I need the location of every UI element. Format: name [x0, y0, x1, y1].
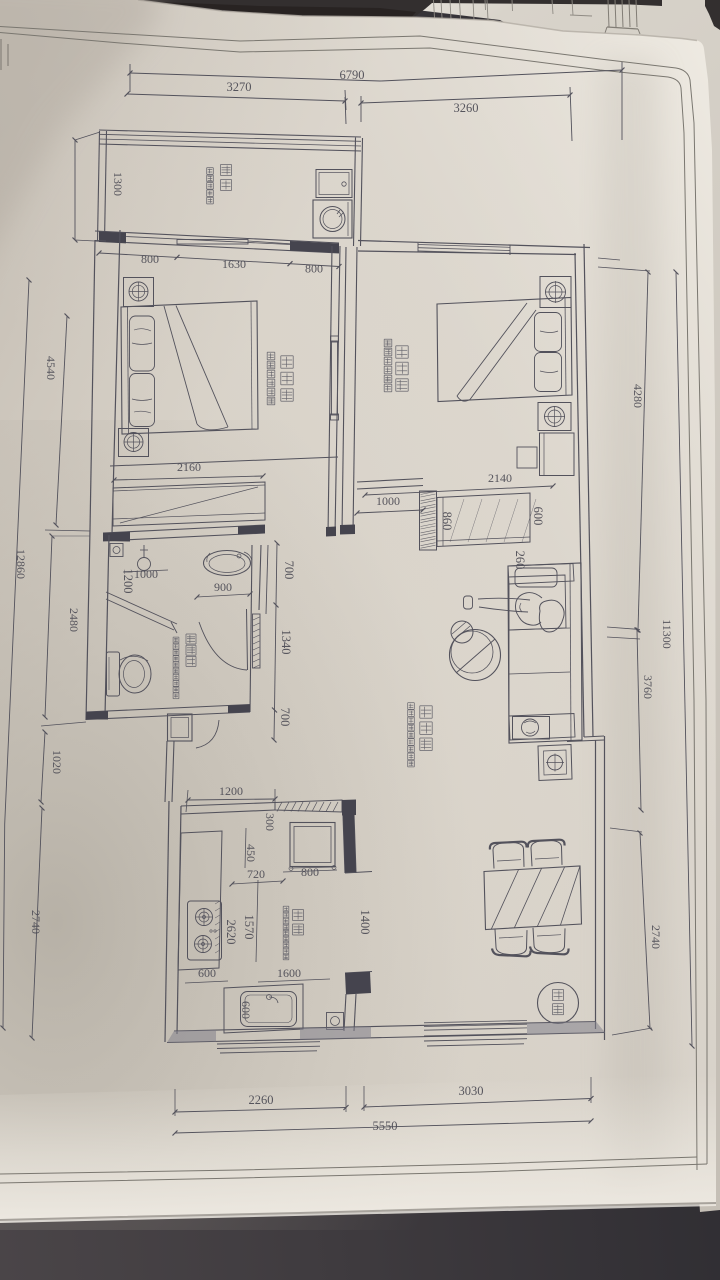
svg-text:1400: 1400 — [358, 910, 372, 935]
svg-text:700: 700 — [278, 708, 292, 727]
svg-text:600: 600 — [198, 966, 216, 980]
svg-text:3760: 3760 — [641, 675, 655, 699]
svg-text:600: 600 — [239, 1001, 253, 1019]
svg-text:3030: 3030 — [459, 1084, 484, 1098]
svg-text:2160: 2160 — [177, 460, 201, 474]
svg-text:1200: 1200 — [219, 784, 243, 798]
svg-text:4540: 4540 — [44, 356, 58, 380]
svg-text:800: 800 — [141, 252, 159, 266]
svg-text:860: 860 — [440, 512, 454, 531]
svg-text:800: 800 — [301, 865, 319, 879]
svg-text:260: 260 — [513, 551, 527, 570]
svg-text:2740: 2740 — [29, 910, 43, 934]
svg-text:5550: 5550 — [373, 1119, 398, 1133]
svg-text:1570: 1570 — [242, 915, 256, 940]
svg-text:2140: 2140 — [488, 471, 512, 485]
svg-text:2260: 2260 — [249, 1093, 274, 1107]
svg-text:720: 720 — [247, 867, 265, 881]
svg-text:700: 700 — [282, 561, 296, 580]
svg-text:4280: 4280 — [631, 384, 645, 408]
svg-text:11300: 11300 — [660, 619, 674, 649]
svg-text:2480: 2480 — [67, 608, 81, 632]
svg-text:3260: 3260 — [454, 101, 479, 115]
svg-text:1600: 1600 — [277, 966, 301, 980]
svg-text:1300: 1300 — [111, 172, 125, 196]
svg-text:2620: 2620 — [224, 920, 238, 945]
svg-text:6790: 6790 — [340, 68, 365, 82]
svg-text:3270: 3270 — [227, 80, 252, 94]
svg-text:1000: 1000 — [134, 567, 158, 581]
svg-text:300: 300 — [263, 813, 277, 831]
svg-text:800: 800 — [305, 262, 323, 276]
svg-text:450: 450 — [244, 844, 258, 862]
svg-text:600: 600 — [531, 507, 545, 526]
svg-text:1000: 1000 — [376, 494, 400, 508]
svg-text:1630: 1630 — [222, 257, 246, 271]
svg-text:12860: 12860 — [14, 549, 28, 579]
svg-text:900: 900 — [214, 580, 232, 594]
svg-text:1340: 1340 — [279, 630, 293, 655]
svg-text:1020: 1020 — [50, 750, 64, 774]
svg-text:2740: 2740 — [649, 925, 663, 949]
